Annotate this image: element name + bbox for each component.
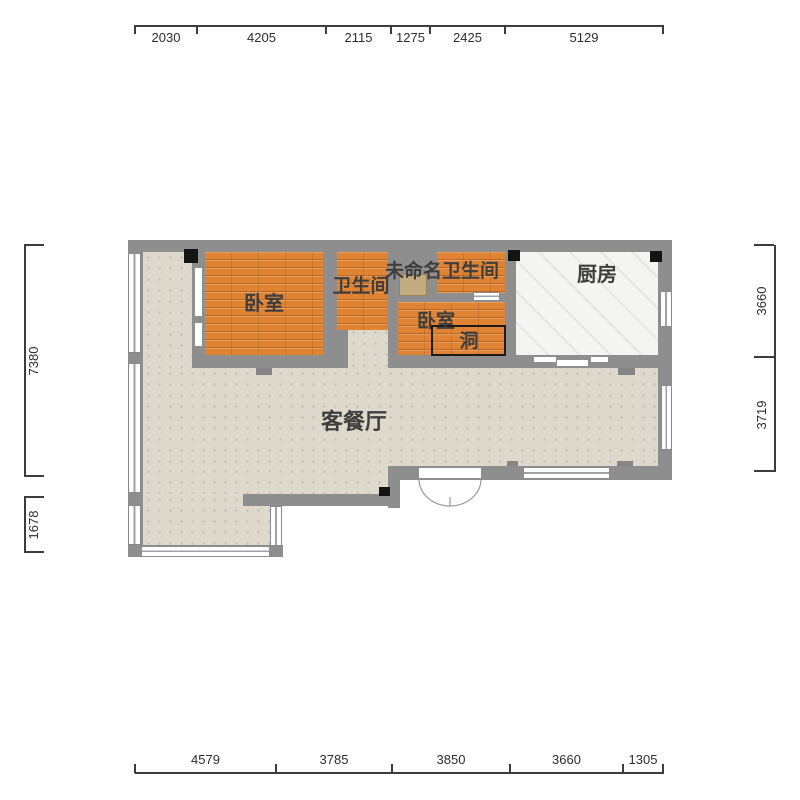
dim-tick [754, 470, 774, 472]
dim-right-1: 3660 [754, 273, 770, 329]
window-unnamed-bathroom[interactable] [473, 292, 500, 301]
window-left-middle[interactable] [128, 363, 141, 493]
column-marker-icon [650, 251, 662, 262]
dim-bottom-4: 3660 [510, 752, 623, 767]
wall-step-horizontal [243, 494, 400, 506]
wall-band-left [192, 355, 348, 368]
column-above-bottom-left [507, 461, 518, 466]
sliding-door-kitchen-panel1[interactable] [533, 356, 557, 363]
floor-plan-canvas: 卧室 卫生间 未命名卫生间 厨房 卧室 洞 客餐厅 2030 4205 2115… [0, 0, 800, 800]
column-under-band [256, 368, 272, 375]
dim-right-2: 3719 [754, 387, 770, 443]
dim-top-1: 2030 [135, 30, 197, 45]
dim-left-1: 7380 [26, 333, 42, 389]
window-bottom-living[interactable] [523, 467, 610, 479]
wall-bedroom1-bathroom1 [323, 252, 337, 355]
dim-bottom-5: 1305 [623, 752, 663, 767]
wall-band-right [388, 355, 672, 368]
dim-tick [24, 244, 44, 246]
dim-top-3: 2115 [326, 30, 391, 45]
dim-line-top [135, 25, 664, 27]
room-label-hole: 洞 [449, 326, 489, 353]
wall-top [128, 240, 672, 252]
dim-top-4: 1275 [391, 30, 430, 45]
room-label-bedroom-1: 卧室 [224, 287, 304, 316]
window-right-living[interactable] [661, 385, 672, 450]
window-bay-bottom[interactable] [141, 546, 270, 557]
dim-top-2: 4205 [197, 30, 326, 45]
wall-bathroom1-lower [337, 330, 348, 355]
dim-bottom-1: 4579 [135, 752, 276, 767]
sliding-door-kitchen-panel2[interactable] [556, 359, 589, 367]
dim-bottom-3: 3850 [392, 752, 510, 767]
dim-bottom-2: 3785 [276, 752, 392, 767]
entry-door-threshold[interactable] [418, 467, 482, 479]
column-marker-icon [184, 249, 198, 263]
dim-line-right [774, 245, 776, 472]
dim-top-6: 5129 [505, 30, 663, 45]
sliding-door-bedroom1[interactable] [194, 267, 203, 317]
dim-tick [754, 244, 774, 246]
sliding-door-bedroom1-panel2[interactable] [194, 322, 203, 347]
column-under-kitchen [618, 368, 635, 375]
window-left-upper[interactable] [128, 253, 141, 353]
dim-tick [754, 356, 774, 358]
sliding-door-kitchen-panel3[interactable] [590, 356, 609, 363]
column-marker-icon [379, 487, 390, 496]
entry-door-swing-icon [418, 479, 482, 507]
room-label-unnamed-bathroom: 未命名卫生间 [362, 256, 522, 283]
dim-tick [24, 475, 44, 477]
room-living-dining-lower[interactable] [143, 466, 398, 494]
dim-top-5: 2425 [430, 30, 505, 45]
window-left-lower[interactable] [128, 505, 141, 545]
dim-left-2: 1678 [26, 497, 42, 553]
column-above-bottom-right [617, 461, 633, 466]
window-right-kitchen[interactable] [660, 291, 672, 327]
room-label-kitchen: 厨房 [557, 258, 637, 287]
room-label-living-dining: 客餐厅 [304, 404, 404, 436]
bathroom1-doorway[interactable] [348, 327, 388, 368]
room-living-dining-corridor[interactable] [143, 252, 192, 368]
dim-line-bottom [135, 772, 664, 774]
window-bay-right[interactable] [270, 506, 282, 546]
